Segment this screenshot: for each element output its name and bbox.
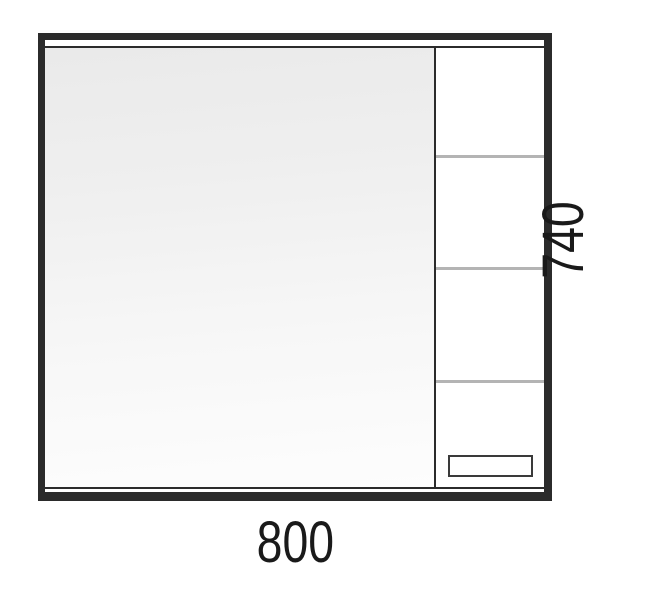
cabinet-outline xyxy=(38,33,552,501)
dimension-diagram: 800 740 xyxy=(0,0,664,600)
height-dimension-label: 740 xyxy=(535,201,593,278)
width-dimension-label: 800 xyxy=(256,514,333,572)
width-dimension: 800 xyxy=(38,514,552,572)
shelf-line xyxy=(436,155,544,158)
mirror-panel xyxy=(45,48,434,487)
carcass-inner-line xyxy=(45,46,544,489)
door-handle xyxy=(448,455,533,477)
shelf-line xyxy=(436,267,544,270)
cabinet-interior xyxy=(45,48,544,487)
shelf-column xyxy=(436,48,544,487)
shelf-line xyxy=(436,380,544,383)
